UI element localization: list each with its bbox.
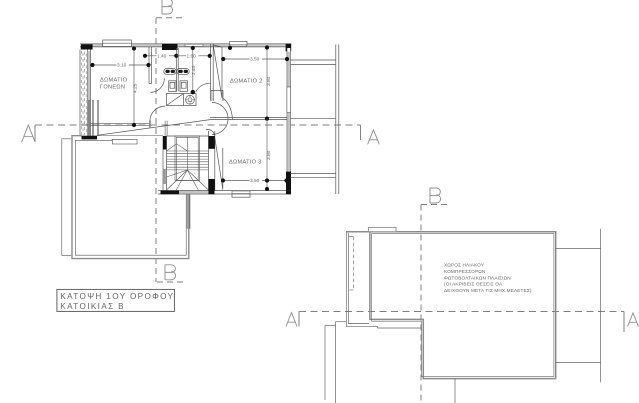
svg-text:ΚΟΜΠΡΕΣΣΟΡΩΝ: ΚΟΜΠΡΕΣΣΟΡΩΝ: [444, 269, 485, 274]
svg-text:1.60: 1.60: [187, 53, 197, 59]
svg-text:ΚΑΤΟΙΚΙΑΣ Β: ΚΑΤΟΙΚΙΑΣ Β: [60, 302, 125, 311]
svg-text:3.50: 3.50: [250, 178, 260, 184]
svg-text:2.40: 2.40: [191, 65, 197, 75]
svg-text:ΔΩΜΑΤΙΟ 2: ΔΩΜΑΤΙΟ 2: [230, 79, 263, 85]
svg-text:ΓΟΝΕΩΝ: ΓΟΝΕΩΝ: [100, 85, 125, 91]
svg-text:3.10: 3.10: [117, 62, 127, 68]
svg-text:ΔΩΜΑΤΙΟ 3: ΔΩΜΑΤΙΟ 3: [229, 160, 262, 166]
svg-text:ΧΩΡΟΣ ΗΛΙΑΚΟΥ: ΧΩΡΟΣ ΗΛΙΑΚΟΥ: [444, 263, 485, 268]
svg-text:4.25: 4.25: [132, 83, 138, 93]
svg-text:3.50: 3.50: [250, 56, 260, 62]
svg-text:ΔΩΜΑΤΙΟ: ΔΩΜΑΤΙΟ: [100, 78, 128, 84]
svg-text:(ΟΙ ΑΚΡΙΒΕΙΣ ΘΕΣΕΙΣ ΘΑ: (ΟΙ ΑΚΡΙΒΕΙΣ ΘΕΣΕΙΣ ΘΑ: [444, 282, 503, 287]
svg-text:ΚΑΤΟΨΗ 1ΟΥ ΟΡΟΦΟΥ: ΚΑΤΟΨΗ 1ΟΥ ΟΡΟΦΟΥ: [60, 292, 174, 301]
svg-text:3.80: 3.80: [266, 76, 272, 86]
svg-text:3.80: 3.80: [266, 150, 272, 160]
svg-text:1.40: 1.40: [157, 53, 167, 59]
svg-text:ΦΩΤΟΒΟΛΤΑΙΚΩΝ ΠΛΑΙΣΙΩΝ: ΦΩΤΟΒΟΛΤΑΙΚΩΝ ΠΛΑΙΣΙΩΝ: [444, 275, 511, 280]
svg-text:ΔΕΙΧΘΟΥΝ ΜΕΤΑ ΤΙΣ ΜΗΧ.ΜΕΛΕΤΕΣ): ΔΕΙΧΘΟΥΝ ΜΕΤΑ ΤΙΣ ΜΗΧ.ΜΕΛΕΤΕΣ): [444, 288, 532, 293]
